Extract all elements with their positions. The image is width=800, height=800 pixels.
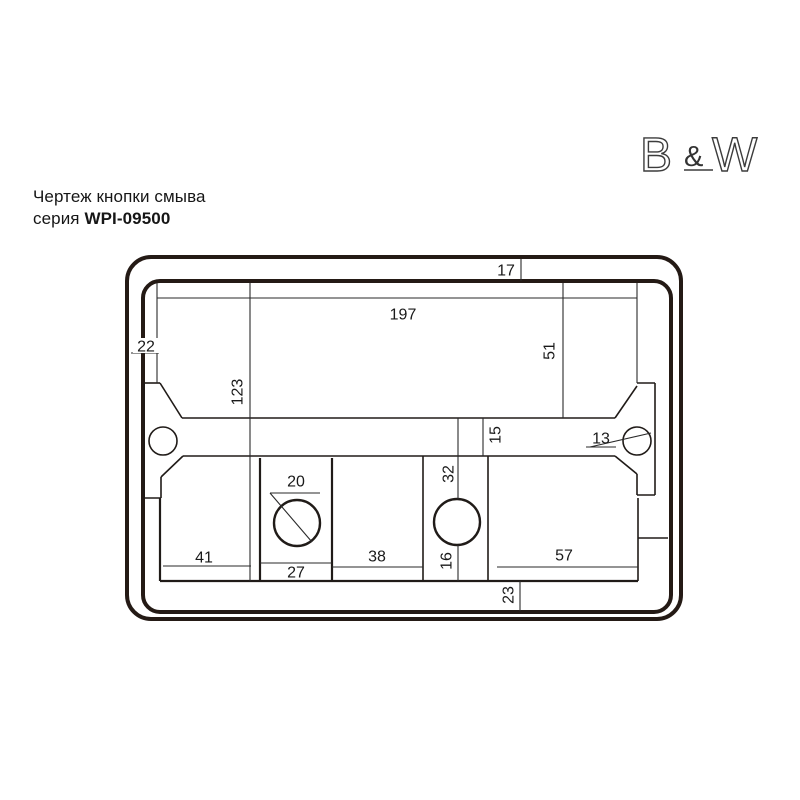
dim-label-41: 41 [195,550,213,567]
right-mount-hole [623,427,651,455]
dim-label-197: 197 [390,307,417,324]
dim-label-27: 27 [287,565,305,582]
logo-letter-w: W [712,129,758,182]
dim-label-16: 16 [439,552,456,570]
logo-ampersand-icon: & [684,141,703,173]
left-mount-hole [149,427,177,455]
dim-label-23: 23 [501,586,518,604]
dim-label-22: 22 [137,339,155,356]
dimension-labels: 17 197 22 51 123 15 13 32 20 41 27 38 16… [133,263,610,604]
left-button-circle [274,500,320,546]
brand-logo: B & W [640,129,758,182]
dim-label-123: 123 [230,379,247,406]
dim-label-15: 15 [488,426,505,444]
dim-label-57: 57 [555,548,573,565]
center-button-circle [434,499,480,545]
dim-label-13: 13 [592,431,610,448]
rocker-bar-shape [144,383,668,538]
dim-label-51: 51 [542,342,559,360]
page: { "brand": { "letter_b": "B", "ampersand… [0,0,800,800]
dim-label-17: 17 [497,263,515,280]
logo-letter-b: B [640,129,672,182]
dim-label-38: 38 [368,549,386,566]
technical-drawing: B & W [0,0,800,800]
dim-label-32: 32 [441,465,458,483]
dim-label-20: 20 [287,474,305,491]
